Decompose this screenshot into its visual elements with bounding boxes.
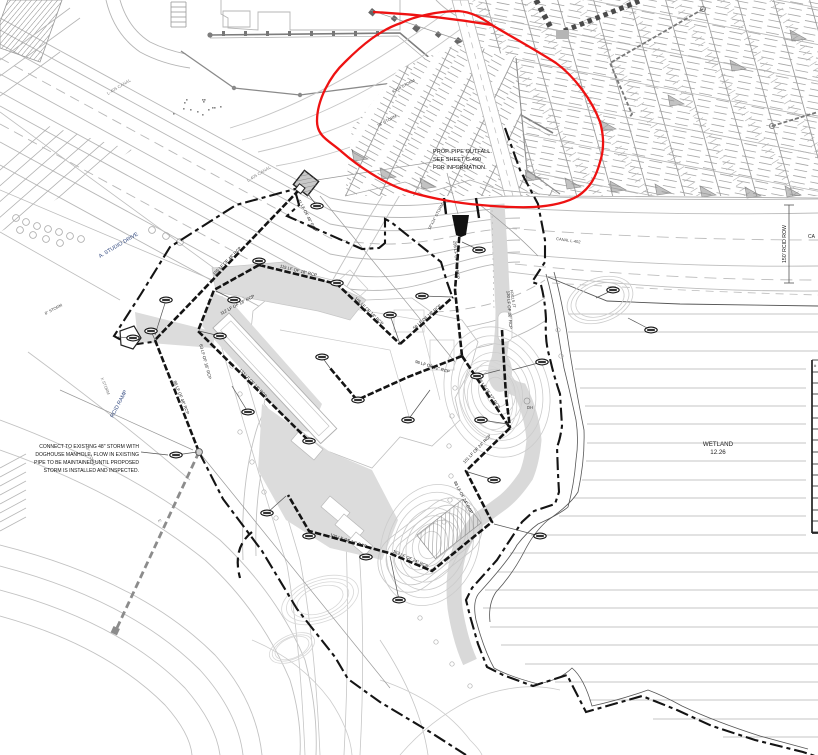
svg-text:STORM IS INSTALLED AND INSPECT: STORM IS INSTALLED AND INSPECTED. [44,468,139,474]
svg-text:PIPE TO BE MAINTAINED UNTIL PR: PIPE TO BE MAINTAINED UNTIL PROPOSED [34,460,139,466]
svg-text:CA: CA [808,234,816,240]
svg-text:SEE SHEET C-490: SEE SHEET C-490 [433,157,481,163]
svg-text:150' RCID ROW: 150' RCID ROW [782,225,788,263]
svg-text:WETLAND: WETLAND [703,441,734,448]
svg-text:DH: DH [527,405,533,410]
svg-text:12.26: 12.26 [710,449,726,456]
svg-text:FOR INFORMATION.: FOR INFORMATION. [433,165,487,171]
svg-text:PROP. PIPE OUTFALL.: PROP. PIPE OUTFALL. [433,149,492,155]
